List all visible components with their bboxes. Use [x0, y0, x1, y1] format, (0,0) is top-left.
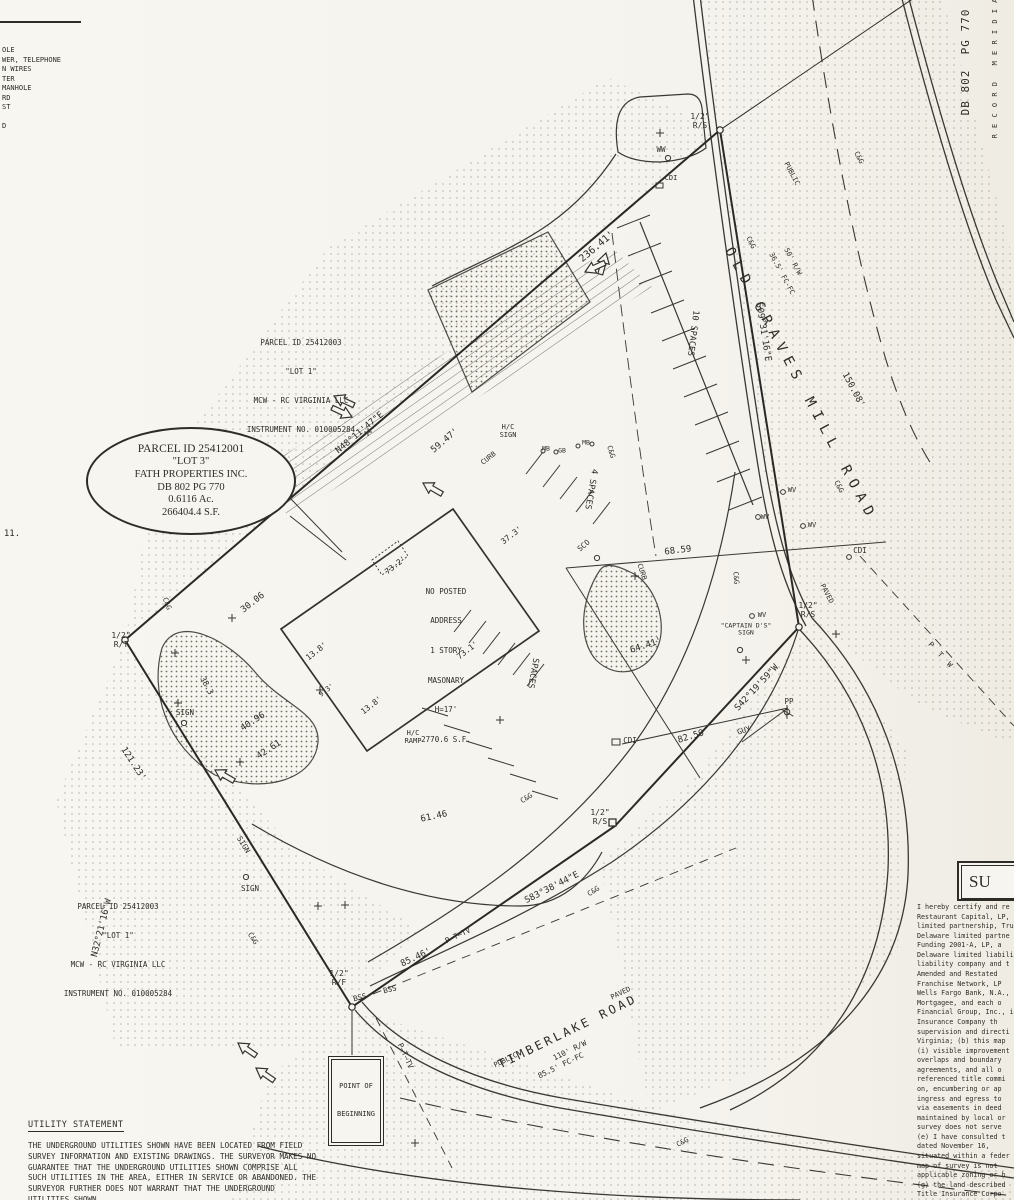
- legend-line: D: [2, 122, 61, 132]
- label-wv-1: WV: [788, 487, 796, 495]
- building-line: 1 STORY: [386, 646, 506, 656]
- utility-statement-body: THE UNDERGROUND UTILITIES SHOWN HAVE BEE…: [28, 1141, 320, 1200]
- callout-line: FATH PROPERTIES INC.: [135, 469, 248, 482]
- label-captain-ds-sign: "CAPTAIN D'S" SIGN: [721, 623, 772, 638]
- label-hc-ramp: H/C RAMP: [405, 730, 422, 746]
- certificate-header: SU: [961, 865, 1014, 899]
- marker-rs-top: 1/2" R/S: [690, 113, 709, 131]
- parcel-line: PARCEL ID 25412003: [208, 338, 394, 348]
- label-pp: PP: [784, 698, 793, 706]
- survey-linework: [0, 0, 1014, 1200]
- parcel-lot3-callout: PARCEL ID 25412001 "LOT 3" FATH PROPERTI…: [86, 427, 296, 535]
- legend-line: MANHOLE: [2, 84, 61, 94]
- certificate-header-box: SU: [957, 861, 1014, 901]
- legend-line: OLE: [2, 46, 61, 56]
- parcel-line: INSTRUMENT NO. 010005284: [25, 989, 211, 999]
- building-line: ADDRESS: [386, 616, 506, 626]
- marker-rt-west: 1/2" R/T: [111, 632, 130, 650]
- margin-db-802: DB 802 PG 770: [960, 9, 972, 116]
- legend-line: TER: [2, 75, 61, 85]
- point-of-beginning-box: POINT OF BEGINNING: [328, 1056, 384, 1146]
- label-gb: GB: [558, 447, 566, 454]
- label-cdi-mid: CDI: [623, 737, 637, 745]
- legend-line: RD: [2, 94, 61, 104]
- parcel-line: MCW - RC VIRGINIA LLC: [25, 960, 211, 970]
- legend-fragment: OLE WER, TELEPHONE N WIRES TER MANHOLE R…: [2, 46, 61, 131]
- label-cdi-top: CDI: [665, 175, 678, 183]
- label-hc-sign: H/C SIGN: [500, 424, 517, 440]
- callout-line: 266404.4 S.F.: [162, 507, 220, 520]
- callout-line: "LOT 3": [173, 456, 210, 469]
- building-line: NO POSTED: [386, 587, 506, 597]
- label-cg-5: C&G: [731, 571, 740, 584]
- note-11: 11.: [4, 529, 20, 539]
- pob-line: POINT OF: [337, 1082, 375, 1091]
- stipple-texture: [56, 0, 1014, 1200]
- pob-line: BEGINNING: [337, 1110, 375, 1119]
- utility-statement-title: UTILITY STATEMENT: [28, 1120, 124, 1132]
- label-mb-1: MB: [542, 445, 550, 452]
- building-line: MASONARY: [386, 676, 506, 686]
- certificate-body: I hereby certify and re Restaurant Capit…: [917, 903, 1014, 1200]
- callout-line: DB 802 PG 770: [157, 482, 224, 495]
- marker-rs-bottom: 1/2" R/S: [590, 809, 609, 827]
- parcel-line: PARCEL ID 25412003: [25, 902, 211, 912]
- legend-line: WER, TELEPHONE: [2, 56, 61, 66]
- marker-rf-pob: 1/2" R/F: [329, 970, 348, 988]
- label-sign-island: SIGN: [176, 709, 194, 717]
- label-wv-3: WV: [808, 522, 816, 530]
- marker-rs-right: 1/2" R/S: [798, 602, 817, 620]
- callout-line: PARCEL ID 25412001: [138, 442, 245, 456]
- margin-record-meridian: R E C O R D M E R I D I A: [992, 0, 1000, 138]
- label-wv-2: WV: [761, 514, 769, 522]
- parcel-line: "LOT 1": [25, 931, 211, 941]
- callout-line: 0.6116 Ac.: [168, 494, 213, 507]
- parcel-line: MCW - RC VIRGINIA LLC: [208, 396, 394, 406]
- parcel-lot1-note-southwest: PARCEL ID 25412003 "LOT 1" MCW - RC VIRG…: [25, 882, 211, 1019]
- legend-line: N WIRES: [2, 65, 61, 75]
- label-ww: WW: [656, 146, 665, 154]
- label-wv-4: WV: [758, 612, 766, 620]
- survey-plat-page: OLE WER, TELEPHONE N WIRES TER MANHOLE R…: [0, 0, 1014, 1200]
- parcel-line: "LOT 1": [208, 367, 394, 377]
- legend-line: ST: [2, 103, 61, 113]
- label-mb-2: MB: [582, 439, 590, 446]
- title-block-rule: [0, 21, 81, 23]
- label-sign-low: SIGN: [241, 885, 259, 893]
- building-line: H=17': [386, 705, 506, 715]
- utility-statement: UTILITY STATEMENT THE UNDERGROUND UTILIT…: [28, 1112, 320, 1200]
- label-cdi-right: CDI: [853, 547, 867, 555]
